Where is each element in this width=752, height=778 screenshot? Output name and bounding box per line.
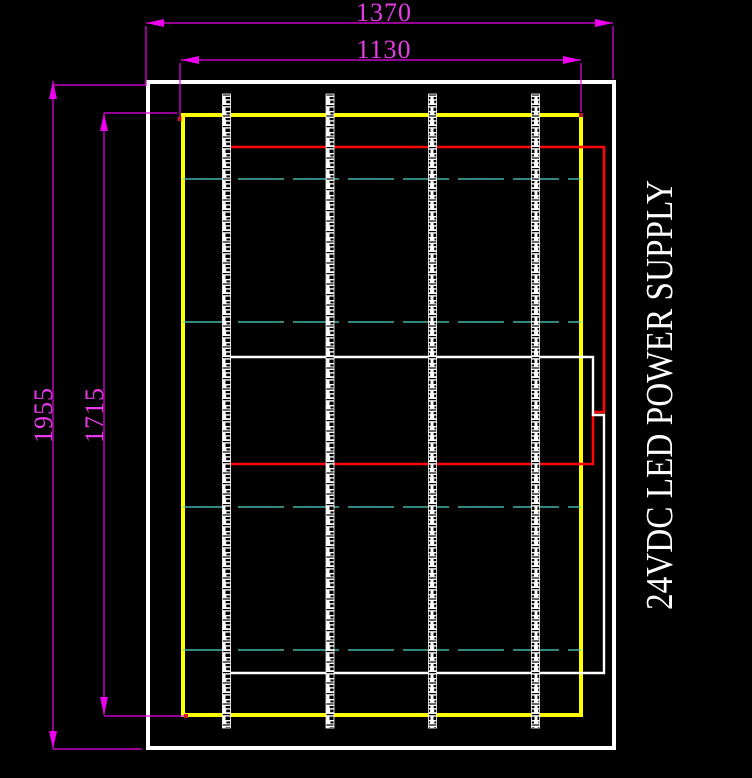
extension-tick [178, 117, 182, 121]
extension-tick [184, 714, 188, 718]
red-wiring-outline[interactable] [227, 147, 604, 464]
extension-tick [579, 113, 583, 117]
dim-outer-width-value: 1370 [356, 0, 412, 27]
dim-inner-height[interactable]: 1715 [80, 113, 188, 718]
arrow-left-icon [146, 19, 164, 27]
led-strip-group[interactable] [223, 94, 540, 728]
arrow-down-icon [49, 731, 57, 749]
led-strip-2[interactable] [326, 94, 334, 728]
arrow-right-icon [595, 19, 613, 27]
arrow-right-icon [563, 56, 581, 64]
cad-viewport[interactable]: 1370 1130 1955 1715 24VDC LED POWER SUPP… [0, 0, 752, 778]
drawing-title[interactable]: 24VDC LED POWER SUPPLY [639, 180, 681, 610]
cad-drawing: 1370 1130 1955 1715 24VDC LED POWER SUPP… [0, 0, 752, 778]
arrow-up-icon [100, 113, 108, 131]
dim-inner-width[interactable]: 1130 [178, 35, 584, 121]
arrow-down-icon [100, 697, 108, 715]
led-strip-3[interactable] [429, 94, 437, 728]
arrow-left-icon [181, 56, 199, 64]
arrow-up-icon [49, 81, 57, 99]
dim-inner-width-value: 1130 [356, 35, 411, 64]
led-strip-1[interactable] [223, 94, 231, 728]
white-wiring-outline[interactable] [230, 357, 604, 673]
inner-frame[interactable] [183, 115, 581, 715]
outer-frame[interactable] [148, 82, 614, 748]
dim-inner-height-value: 1715 [80, 387, 109, 443]
dim-outer-height-value: 1955 [29, 387, 58, 443]
led-strip-4[interactable] [532, 94, 540, 728]
crossbar-group[interactable] [183, 179, 581, 650]
